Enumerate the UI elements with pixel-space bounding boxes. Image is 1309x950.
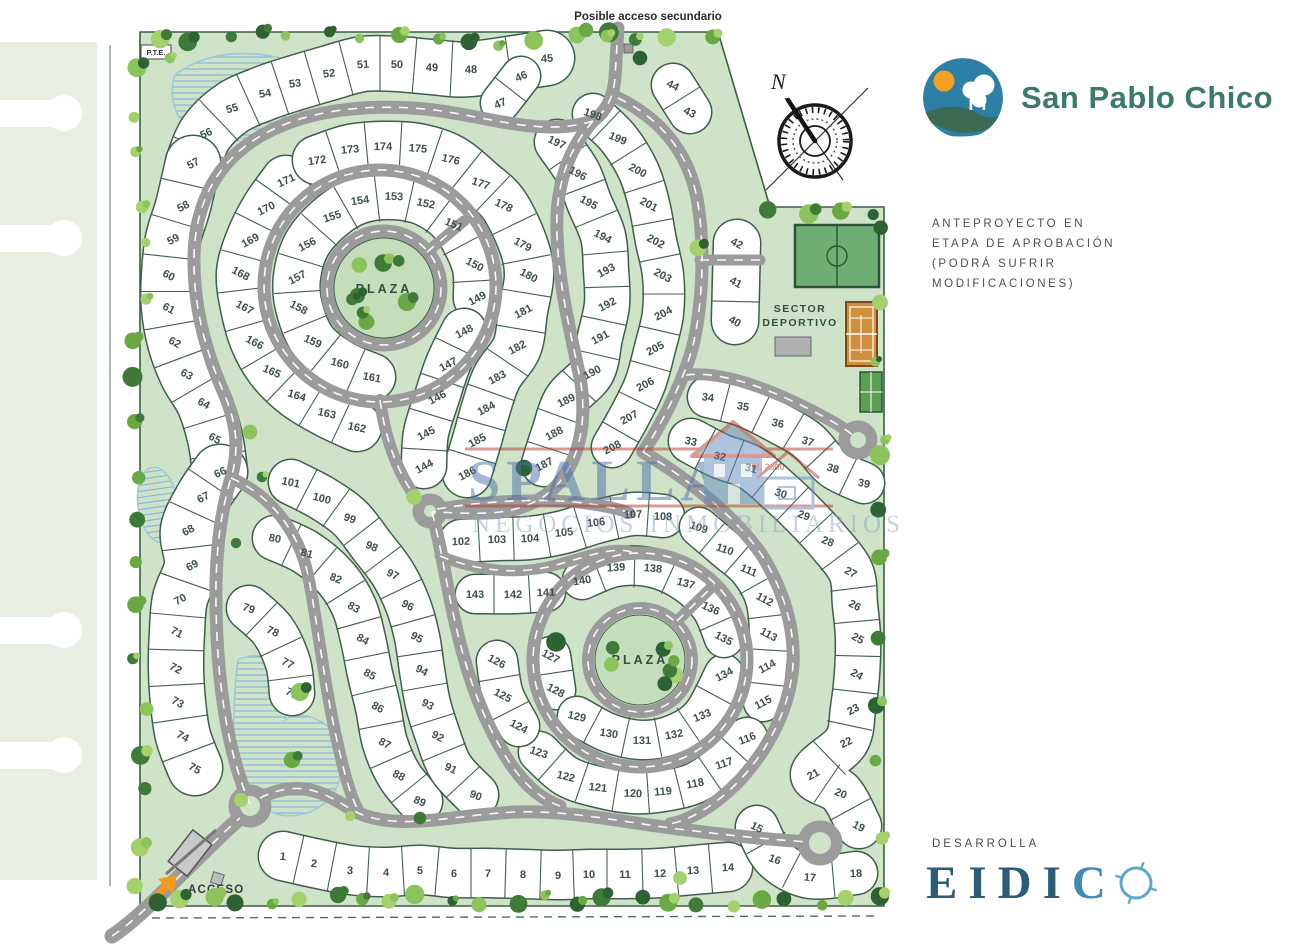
- tree-icon: [141, 837, 152, 848]
- lot-number: 142: [504, 589, 523, 601]
- secondary-access-label: Posible acceso secundario: [574, 11, 722, 23]
- tree-icon: [149, 893, 167, 911]
- tree-icon: [281, 31, 291, 41]
- lot-number: 5: [417, 865, 423, 877]
- lot-number: 141: [537, 587, 556, 600]
- tree-icon: [301, 682, 312, 693]
- lot-number: 8: [520, 869, 526, 881]
- tree-icon: [668, 655, 679, 666]
- tree-icon: [263, 471, 269, 477]
- tree-icon: [226, 31, 237, 42]
- tree-icon: [363, 306, 370, 313]
- tree-icon: [545, 890, 551, 896]
- lot-number: 12: [654, 868, 667, 880]
- tree-icon: [868, 209, 879, 220]
- lot-number: 49: [426, 62, 439, 74]
- tree-icon: [886, 434, 892, 440]
- roundabout-island: [809, 832, 831, 854]
- tree-icon: [123, 367, 143, 387]
- tree-icon: [524, 31, 543, 50]
- tree-icon: [880, 549, 890, 559]
- eidico-letter: I: [1043, 856, 1061, 910]
- tree-icon: [838, 890, 854, 906]
- lot-number: 143: [466, 589, 484, 601]
- tree-icon: [330, 26, 337, 33]
- tree-icon: [161, 29, 172, 40]
- lot-number: 11: [619, 869, 631, 881]
- tree-icon: [604, 657, 619, 672]
- tree-icon: [635, 890, 650, 905]
- sector-label-1: SECTOR: [774, 303, 827, 315]
- tree-icon: [263, 24, 272, 33]
- tree-icon: [141, 745, 152, 756]
- tree-icon: [664, 641, 673, 650]
- lot-number: 51: [357, 59, 370, 72]
- tree-icon: [817, 900, 828, 911]
- tree-icon: [171, 52, 177, 58]
- tree-icon: [439, 33, 446, 40]
- tree-icon: [141, 238, 150, 247]
- clubhouse-building: [775, 337, 811, 356]
- neighbour-strip: [0, 42, 110, 886]
- tree-icon: [147, 293, 154, 300]
- tree-icon: [136, 596, 146, 606]
- tree-icon: [871, 631, 886, 646]
- lot-number: 121: [588, 781, 608, 795]
- tree-icon: [728, 900, 740, 912]
- tree-icon: [138, 782, 151, 795]
- tree-icon: [393, 255, 405, 267]
- watermark-tagline: NEGOCIOS INMOBILIARIOS: [472, 511, 905, 538]
- lot-number: 139: [606, 561, 625, 574]
- tree-icon: [633, 51, 648, 66]
- compass-rose: N: [766, 69, 868, 190]
- lot-number: 153: [385, 191, 404, 203]
- lot-number: 138: [643, 562, 662, 576]
- tree-icon: [470, 33, 480, 43]
- lot-number: 39: [857, 477, 871, 491]
- tree-icon: [759, 201, 776, 218]
- tree-icon: [136, 146, 142, 152]
- watermark-name: SPALLA: [468, 448, 729, 513]
- tennis-court: [846, 302, 877, 366]
- tree-icon: [231, 538, 241, 548]
- lot-number: 1: [279, 851, 286, 864]
- tree-icon: [872, 295, 888, 311]
- tree-icon: [876, 356, 882, 362]
- san-pablo-chico-logo-icon: [921, 56, 1005, 140]
- access-booth-secondary: [624, 44, 633, 53]
- tree-icon: [143, 200, 151, 208]
- tree-icon: [216, 887, 227, 898]
- tree-icon: [877, 696, 887, 706]
- lot-number: 119: [654, 785, 673, 798]
- tree-icon: [339, 886, 349, 896]
- lot-number: 102: [452, 536, 471, 548]
- tree-icon: [810, 203, 822, 215]
- lot-number: 80: [268, 532, 282, 546]
- brand-header: San Pablo Chico: [921, 56, 1273, 140]
- roundabout-island: [850, 432, 866, 448]
- eidico-crosshair-icon: [1112, 859, 1160, 907]
- paddle-court: [860, 372, 882, 412]
- tree-icon: [578, 896, 587, 905]
- tree-icon: [414, 812, 427, 825]
- tree-icon: [352, 257, 367, 272]
- tree-icon: [132, 471, 145, 484]
- tree-icon: [658, 28, 676, 46]
- tree-icon: [546, 632, 566, 652]
- lot-number: 9: [555, 870, 561, 882]
- approval-note: ANTEPROYECTO EN ETAPA DE APROBACIÓN (POD…: [932, 214, 1115, 294]
- tree-icon: [673, 871, 687, 885]
- lot-number: 2: [310, 858, 317, 871]
- tree-icon: [133, 652, 140, 659]
- tree-icon: [499, 40, 505, 46]
- lot-number: 173: [340, 143, 359, 157]
- tree-icon: [293, 751, 303, 761]
- tree-icon: [400, 26, 410, 36]
- lot-number: 13: [687, 865, 700, 877]
- tree-icon: [606, 641, 620, 655]
- tree-icon: [842, 202, 852, 212]
- tree-icon: [129, 512, 145, 528]
- tree-icon: [636, 33, 644, 41]
- tree-icon: [138, 57, 149, 68]
- outer-boundary-dashed: [152, 916, 878, 918]
- tree-icon: [669, 893, 680, 904]
- lot-number: 50: [391, 59, 403, 71]
- lot-number: 35: [736, 400, 750, 414]
- lot-number: 33: [684, 435, 699, 449]
- tree-icon: [408, 292, 419, 303]
- lot-number: 34: [701, 391, 715, 404]
- lot-number: 175: [408, 142, 427, 156]
- tree-icon: [363, 892, 371, 900]
- tree-icon: [135, 413, 144, 422]
- tree-icon: [292, 892, 307, 907]
- lot-number: 48: [465, 64, 478, 76]
- tree-icon: [870, 445, 890, 465]
- tree-icon: [579, 23, 594, 38]
- tree-icon: [874, 221, 888, 235]
- tree-icon: [390, 893, 399, 902]
- lot-number: 10: [583, 869, 595, 881]
- tree-icon: [883, 831, 891, 839]
- tree-icon: [405, 885, 424, 904]
- sun-icon: [934, 71, 955, 92]
- tree-icon: [870, 755, 882, 767]
- lot-number: 17: [803, 872, 816, 885]
- tree-icon: [227, 894, 244, 911]
- tree-icon: [273, 898, 279, 904]
- lot-number: 18: [850, 868, 863, 880]
- tree-icon: [453, 895, 459, 901]
- tree-icon: [129, 112, 140, 123]
- tree-icon: [345, 811, 355, 821]
- tree-icon: [134, 332, 144, 342]
- tree-icon: [189, 32, 200, 43]
- tree-icon: [140, 702, 154, 716]
- lot-number: 7: [485, 868, 491, 880]
- eidico-letter: E: [926, 856, 957, 910]
- lot-number: 4: [383, 867, 390, 879]
- tree-icon: [699, 239, 709, 249]
- tree-icon: [753, 890, 772, 909]
- lot-number: 53: [288, 77, 302, 91]
- tree-icon: [657, 676, 672, 691]
- lot-number: 174: [374, 141, 393, 153]
- tree-icon: [353, 293, 360, 300]
- compass-north-label: N: [770, 69, 787, 94]
- tree-icon: [355, 34, 364, 43]
- site-plan-map: 1234567891011121314151617181920212223242…: [0, 0, 1309, 950]
- lot-number: 6: [451, 868, 457, 880]
- developer-logo: E I D I C: [926, 856, 1160, 910]
- tree-icon: [714, 29, 723, 38]
- tree-icon: [608, 29, 616, 37]
- eidico-letter: I: [968, 856, 986, 910]
- lot-number: 131: [633, 735, 651, 747]
- lot-number: 120: [624, 788, 643, 801]
- tree-icon: [777, 892, 792, 907]
- tree-icon: [130, 556, 142, 568]
- tree-icon: [180, 889, 191, 900]
- sector-label-2: DEPORTIVO: [762, 317, 837, 329]
- tree-icon: [879, 887, 890, 898]
- tree-icon: [243, 425, 258, 440]
- lot-number: 52: [322, 67, 336, 80]
- project-title: San Pablo Chico: [1021, 80, 1273, 116]
- lot-number: 3: [347, 865, 354, 877]
- tree-icon: [406, 489, 422, 505]
- tree-icon: [127, 878, 143, 894]
- eidico-letter: C: [1072, 856, 1106, 910]
- tree-icon: [234, 793, 248, 807]
- tree-icon: [688, 897, 703, 912]
- pte-label: P.T.E.: [146, 48, 165, 57]
- tree-icon: [471, 897, 486, 912]
- tree-icon: [603, 887, 614, 898]
- developer-label: DESARROLLA: [932, 838, 1039, 850]
- page: 1234567891011121314151617181920212223242…: [0, 0, 1309, 950]
- eidico-letter: D: [998, 856, 1032, 910]
- roundabout-island: [424, 505, 436, 517]
- lot-number: 45: [541, 53, 554, 66]
- watermark-badge: M. 2600: [752, 462, 785, 472]
- tree-icon: [510, 895, 528, 913]
- lot-number: 14: [722, 862, 736, 874]
